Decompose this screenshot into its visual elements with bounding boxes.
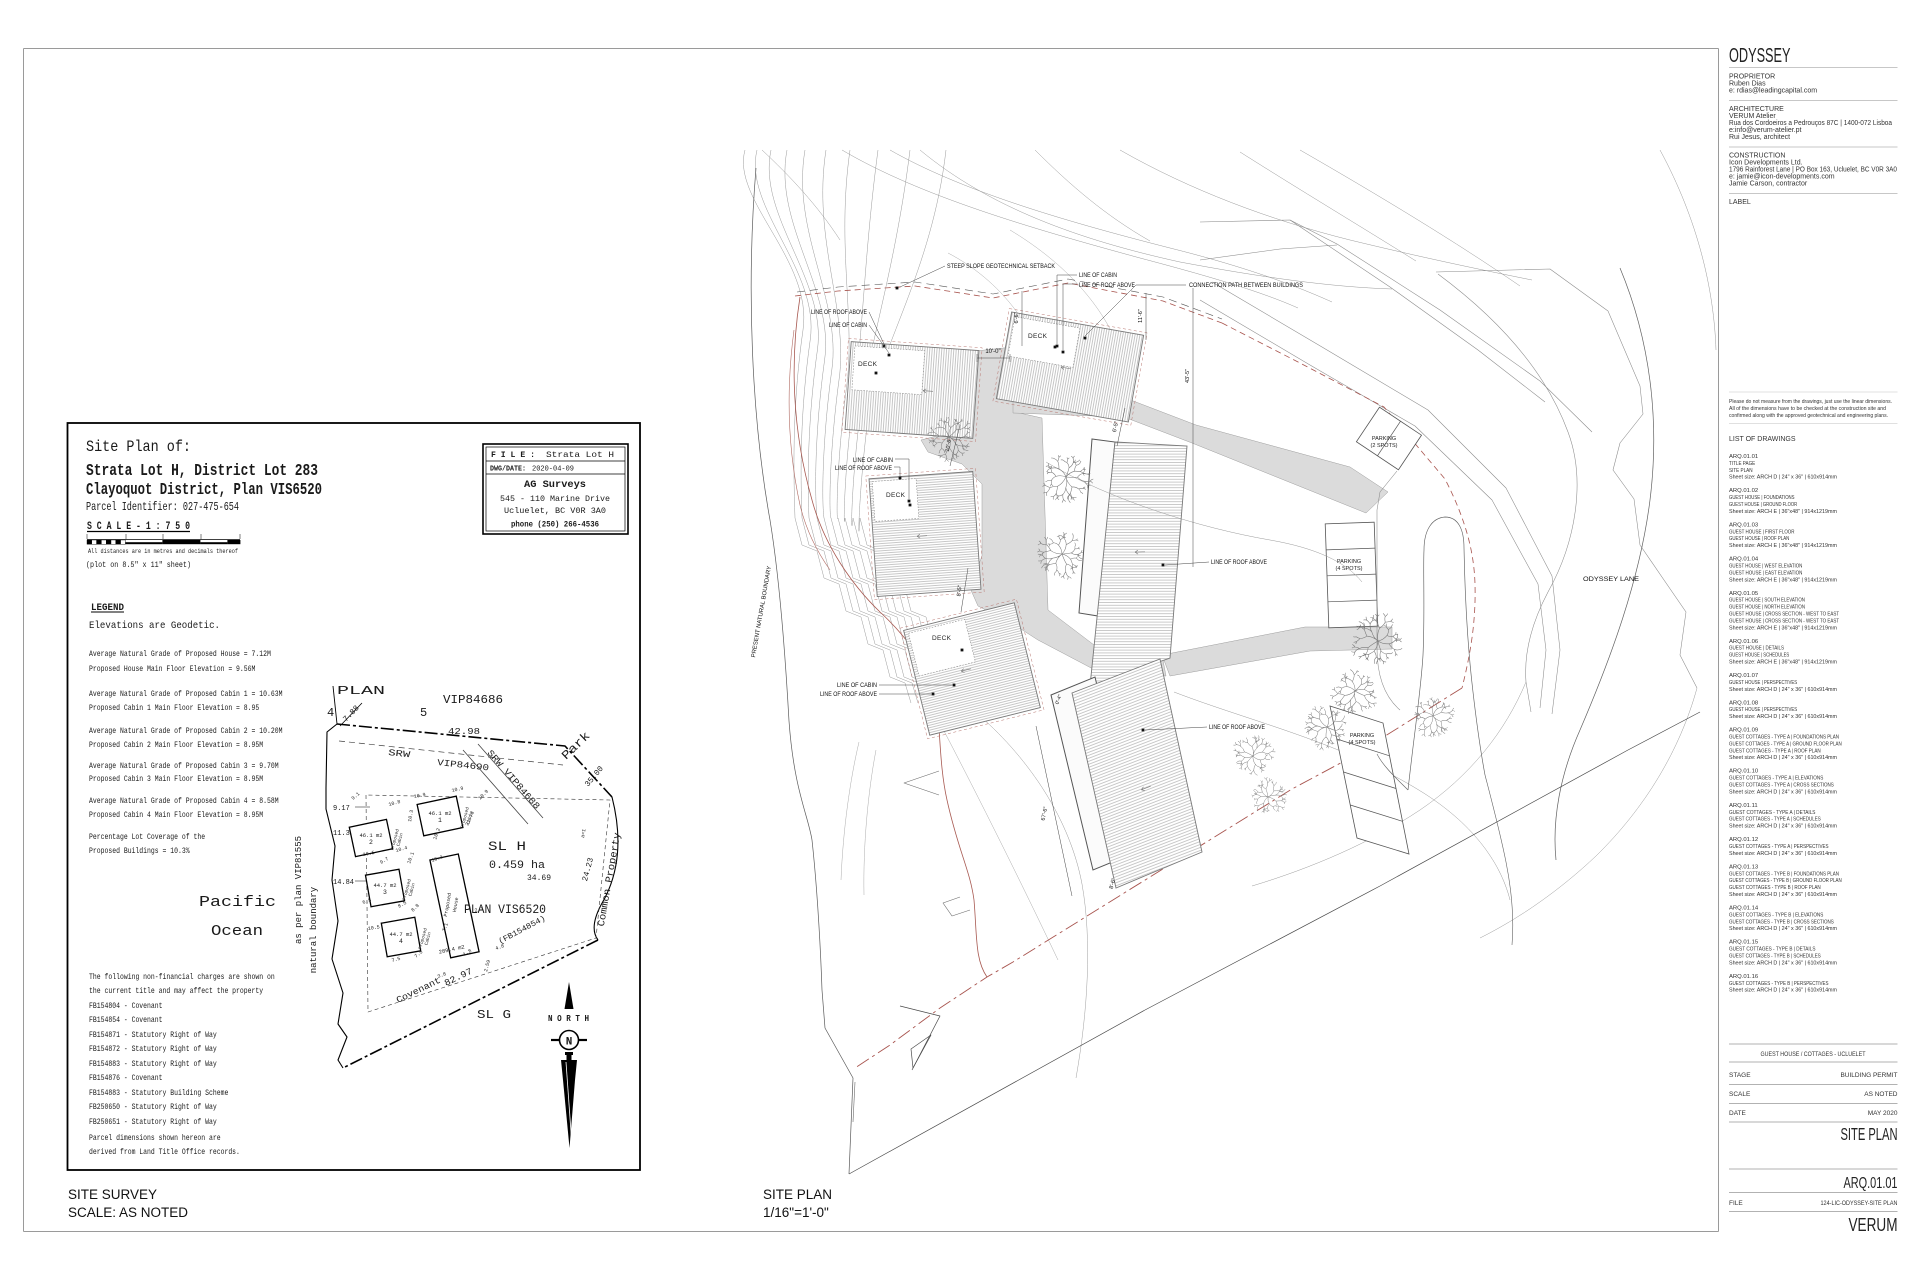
svg-text:DECK: DECK (932, 635, 952, 642)
svg-text:FB154883 - Statutory Right of: FB154883 - Statutory Right of Way (89, 1060, 217, 1069)
svg-text:Proposed House Main Floor Elev: Proposed House Main Floor Elevation = 9.… (89, 665, 256, 674)
svg-text:Sheet size: ARCH D | 24" x 36": Sheet size: ARCH D | 24" x 36" | 610x914… (1729, 988, 1837, 994)
svg-text:3: 3 (383, 889, 387, 896)
svg-text:Elevations are Geodetic.: Elevations are Geodetic. (89, 620, 220, 632)
svg-text:LINE OF CABIN: LINE OF CABIN (1079, 272, 1117, 279)
svg-text:derived from Land Title Office: derived from Land Title Office records. (89, 1148, 240, 1157)
svg-text:STEEP SLOPE GEOTECHNICAL SETBA: STEEP SLOPE GEOTECHNICAL SETBACK (947, 263, 1056, 270)
svg-text:SCALE: SCALE (1729, 1091, 1751, 1098)
svg-text:Sheet size: ARCH E | 36"x48" |: Sheet size: ARCH E | 36"x48" | 914x1219m… (1729, 577, 1837, 583)
svg-text:GUEST COTTAGES - TYPE A | ELEV: GUEST COTTAGES - TYPE A | ELEVATIONS (1729, 776, 1823, 782)
svg-text:ARQ.01.05: ARQ.01.05 (1729, 591, 1759, 597)
svg-text:ARQ.01.08: ARQ.01.08 (1729, 700, 1759, 706)
svg-text:ARQ.01.14: ARQ.01.14 (1729, 906, 1759, 912)
svg-text:Jamie Carson, contractor: Jamie Carson, contractor (1729, 181, 1808, 188)
svg-text:Ruben Dias: Ruben Dias (1729, 81, 1766, 88)
svg-text:VERUM Atelier: VERUM Atelier (1729, 113, 1776, 120)
svg-text:Icon Developments Ltd.: Icon Developments Ltd. (1729, 160, 1803, 167)
svg-text:Average Natural Grade of Propo: Average Natural Grade of Proposed House … (89, 650, 271, 659)
svg-text:46.1 m2: 46.1 m2 (428, 810, 451, 817)
svg-text:VIP84686: VIP84686 (443, 693, 503, 707)
svg-text:confirmed along with the appro: confirmed along with the approved geotec… (1729, 413, 1888, 419)
svg-text:Sheet size: ARCH D | 24" x 36": Sheet size: ARCH D | 24" x 36" | 610x914… (1729, 824, 1837, 830)
svg-text:GUEST COTTAGES - TYPE A | ROOF: GUEST COTTAGES - TYPE A | ROOF PLAN (1729, 748, 1821, 754)
svg-text:GUEST COTTAGES - TYPE B | CROS: GUEST COTTAGES - TYPE B | CROSS SECTIONS (1729, 919, 1834, 925)
svg-text:Sheet size: ARCH D | 24" x 36": Sheet size: ARCH D | 24" x 36" | 610x914… (1729, 892, 1837, 898)
svg-text:PROPRIETOR: PROPRIETOR (1729, 74, 1775, 81)
svg-text:DECK: DECK (1028, 333, 1048, 340)
svg-text:42.98: 42.98 (448, 727, 480, 737)
svg-text:8'-5": 8'-5" (956, 585, 963, 597)
svg-text:Rua dos Cordoeiros a Pedrouços: Rua dos Cordoeiros a Pedrouços 87C | 140… (1729, 120, 1892, 127)
svg-text:Sheet size: ARCH D | 24" x 36": Sheet size: ARCH D | 24" x 36" | 610x914… (1729, 714, 1837, 720)
svg-text:FB154804 - Covenant: FB154804 - Covenant (89, 1002, 163, 1011)
svg-text:GUEST COTTAGES - TYPE B | ELEV: GUEST COTTAGES - TYPE B | ELEVATIONS (1729, 912, 1823, 918)
svg-text:GUEST COTTAGES - TYPE B | FOUN: GUEST COTTAGES - TYPE B | FOUNDATIONS PL… (1729, 871, 1839, 877)
svg-text:Ocean: Ocean (211, 923, 263, 940)
svg-text:Pacific: Pacific (199, 894, 276, 911)
svg-text:Rui Jesus, architect: Rui Jesus, architect (1729, 134, 1790, 141)
svg-text:GUEST HOUSE | DETAILS: GUEST HOUSE | DETAILS (1729, 646, 1784, 652)
svg-text:Average Natural Grade of Propo: Average Natural Grade of Proposed Cabin … (89, 690, 283, 699)
svg-text:GUEST COTTAGES - TYPE A | PERS: GUEST COTTAGES - TYPE A | PERSPECTIVES (1729, 844, 1829, 850)
svg-text:GUEST COTTAGES - TYPE A | SCHE: GUEST COTTAGES - TYPE A | SCHEDULES (1729, 817, 1821, 823)
svg-text:2020-04-09: 2020-04-09 (532, 466, 574, 474)
svg-text:ODYSSEY LANE: ODYSSEY LANE (1583, 576, 1640, 583)
svg-text:43'-5": 43'-5" (1185, 369, 1191, 383)
svg-text:ARQ.01.15: ARQ.01.15 (1729, 940, 1759, 946)
svg-text:Site Plan of:: Site Plan of: (86, 438, 191, 456)
svg-text:PARKING: PARKING (1350, 733, 1374, 739)
svg-text:Proposed Cabin 3 Main Floor El: Proposed Cabin 3 Main Floor Elevation = … (89, 775, 263, 784)
svg-text:SITE PLAN: SITE PLAN (763, 1187, 832, 1202)
svg-text:GUEST COTTAGES - TYPE A | CROS: GUEST COTTAGES - TYPE A | CROSS SECTIONS (1729, 783, 1834, 789)
svg-text:Sheet size: ARCH D | 24" x 36": Sheet size: ARCH D | 24" x 36" | 610x914… (1729, 960, 1837, 966)
svg-text:46.1 m2: 46.1 m2 (359, 832, 382, 839)
svg-text:ARQ.01.01: ARQ.01.01 (1844, 1175, 1898, 1192)
svg-text:SL G: SL G (477, 1008, 511, 1022)
svg-text:Sheet size: ARCH D | 24" x 36": Sheet size: ARCH D | 24" x 36" | 610x914… (1729, 687, 1837, 693)
svg-text:ARQ.01.06: ARQ.01.06 (1729, 639, 1759, 645)
svg-text:LINE OF ROOF ABOVE: LINE OF ROOF ABOVE (835, 465, 893, 472)
svg-text:GUEST COTTAGES - TYPE B | PERS: GUEST COTTAGES - TYPE B | PERSPECTIVES (1729, 981, 1829, 987)
svg-text:DECK: DECK (886, 492, 906, 499)
svg-text:4: 4 (327, 706, 334, 720)
svg-text:Strata Lot H: Strata Lot H (546, 450, 614, 460)
svg-text:SITE PLAN: SITE PLAN (1729, 468, 1753, 474)
svg-text:2: 2 (369, 839, 373, 846)
svg-text:Sheet size: ARCH E | 36"x48" |: Sheet size: ARCH E | 36"x48" | 914x1219m… (1729, 660, 1837, 666)
svg-text:ARQ.01.11: ARQ.01.11 (1729, 803, 1758, 809)
svg-text:All distances are in metres an: All distances are in metres and decimals… (88, 548, 238, 555)
svg-text:LINE OF ROOF ABOVE: LINE OF ROOF ABOVE (1211, 559, 1268, 566)
svg-text:Proposed Cabin 2 Main Floor El: Proposed Cabin 2 Main Floor Elevation = … (89, 741, 263, 750)
svg-text:FB154854 - Covenant: FB154854 - Covenant (89, 1016, 163, 1025)
svg-text:Proposed Buildings = 10.3%: Proposed Buildings = 10.3% (89, 847, 190, 856)
svg-text:GUEST COTTAGES - TYPE B | GROU: GUEST COTTAGES - TYPE B | GROUND FLOOR P… (1729, 878, 1842, 884)
svg-text:LINE OF ROOF ABOVE: LINE OF ROOF ABOVE (811, 309, 868, 316)
svg-text:Proposed Cabin 4 Main Floor El: Proposed Cabin 4 Main Floor Elevation = … (89, 811, 263, 820)
svg-text:GUEST HOUSE | CROSS SECTION -: GUEST HOUSE | CROSS SECTION - WEST TO EA… (1729, 618, 1839, 624)
svg-text:FB154872 - Statutory Right of: FB154872 - Statutory Right of Way (89, 1045, 217, 1054)
svg-text:(plot on 8.5" x 11" sheet): (plot on 8.5" x 11" sheet) (86, 560, 191, 570)
svg-text:0.459 ha: 0.459 ha (489, 860, 545, 872)
svg-text:ARCHITECTURE: ARCHITECTURE (1729, 106, 1784, 113)
svg-text:10'-0": 10'-0" (985, 349, 1000, 355)
svg-text:545 - 110 Marine Drive: 545 - 110 Marine Drive (500, 494, 610, 504)
svg-text:1: 1 (438, 817, 442, 824)
svg-text:Ucluelet, BC V0R 3A0: Ucluelet, BC V0R 3A0 (504, 506, 606, 516)
svg-text:44.7 m2: 44.7 m2 (373, 882, 396, 889)
svg-text:ARQ.01.07: ARQ.01.07 (1729, 673, 1758, 679)
svg-text:LINE OF ROOF ABOVE: LINE OF ROOF ABOVE (1209, 724, 1266, 731)
svg-text:LINE OF ROOF ABOVE: LINE OF ROOF ABOVE (820, 691, 878, 698)
svg-text:GUEST COTTAGES - TYPE A | DETA: GUEST COTTAGES - TYPE A | DETAILS (1729, 810, 1816, 816)
svg-text:(2 SPOTS): (2 SPOTS) (1371, 443, 1398, 449)
svg-text:44.7 m2: 44.7 m2 (389, 931, 412, 938)
svg-text:ARQ.01.16: ARQ.01.16 (1729, 974, 1759, 980)
svg-text:GUEST COTTAGES - TYPE A | GROU: GUEST COTTAGES - TYPE A | GROUND FLOOR P… (1729, 741, 1842, 747)
svg-text:LABEL: LABEL (1729, 199, 1751, 206)
svg-text:Sheet size: ARCH D | 24" x 36": Sheet size: ARCH D | 24" x 36" | 610x914… (1729, 475, 1837, 481)
svg-text:DATE: DATE (1729, 1110, 1747, 1117)
svg-text:TITLE PAGE: TITLE PAGE (1729, 461, 1755, 467)
svg-text:PARKING: PARKING (1337, 559, 1361, 565)
svg-text:Sheet size: ARCH D | 24" x 36": Sheet size: ARCH D | 24" x 36" | 610x914… (1729, 755, 1837, 761)
svg-text:124-LIC-ODYSSEY-SITE PLAN: 124-LIC-ODYSSEY-SITE PLAN (1821, 1200, 1898, 1207)
svg-text:34.69: 34.69 (527, 874, 551, 883)
svg-text:PLAN: PLAN (337, 684, 385, 698)
svg-text:GUEST HOUSE | PERSPECTIVES: GUEST HOUSE | PERSPECTIVES (1729, 680, 1797, 686)
svg-text:GUEST HOUSE | SCHEDULES: GUEST HOUSE | SCHEDULES (1729, 653, 1789, 659)
svg-text:SCALE: AS NOTED: SCALE: AS NOTED (68, 1205, 188, 1220)
svg-text:5: 5 (420, 706, 427, 720)
svg-text:ARQ.01.01: ARQ.01.01 (1729, 454, 1758, 460)
svg-text:ARQ.01.03: ARQ.01.03 (1729, 522, 1759, 528)
svg-text:Sheet size: ARCH D | 24" x 36": Sheet size: ARCH D | 24" x 36" | 610x914… (1729, 926, 1837, 932)
svg-text:ARQ.01.09: ARQ.01.09 (1729, 728, 1758, 734)
svg-text:ARQ.01.04: ARQ.01.04 (1729, 557, 1759, 563)
svg-text:phone (250) 266-4536: phone (250) 266-4536 (511, 521, 599, 530)
svg-text:Percentage Lot Coverage of the: Percentage Lot Coverage of the (89, 833, 205, 842)
svg-text:GUEST HOUSE | FIRST FLOOR: GUEST HOUSE | FIRST FLOOR (1729, 529, 1795, 535)
svg-text:ARQ.01.13: ARQ.01.13 (1729, 864, 1759, 870)
svg-text:FB154876 - Covenant: FB154876 - Covenant (89, 1074, 163, 1083)
svg-text:GUEST HOUSE | ROOF PLAN: GUEST HOUSE | ROOF PLAN (1729, 536, 1789, 542)
svg-text:ARQ.01.02: ARQ.01.02 (1729, 488, 1758, 494)
svg-text:the current title and may affe: the current title and may affect the pro… (89, 987, 263, 996)
svg-text:as per plan VIP81555: as per plan VIP81555 (294, 836, 304, 944)
svg-text:FB154883 - Statutory Building: FB154883 - Statutory Building Scheme (89, 1089, 228, 1098)
svg-text:N O R T H: N O R T H (548, 1013, 589, 1024)
svg-text:(4 SPOTS): (4 SPOTS) (1349, 740, 1376, 746)
svg-text:FILE: FILE (1729, 1200, 1743, 1207)
svg-text:GUEST HOUSE | FOUNDATIONS: GUEST HOUSE | FOUNDATIONS (1729, 495, 1795, 501)
svg-text:FB250650 - Statutory Right of: FB250650 - Statutory Right of Way (89, 1103, 217, 1112)
svg-text:F I L E :: F I L E : (491, 450, 535, 460)
svg-text:Please do not measure from the: Please do not measure from the drawings,… (1729, 399, 1892, 405)
svg-text:14.84: 14.84 (333, 879, 354, 887)
svg-text:e: rdias@leadingcapital.com: e: rdias@leadingcapital.com (1729, 88, 1817, 95)
svg-text:ARQ.01.12: ARQ.01.12 (1729, 837, 1758, 843)
svg-text:LINE OF CABIN: LINE OF CABIN (829, 322, 867, 329)
svg-text:11'-6": 11'-6" (1138, 309, 1144, 323)
svg-text:GUEST HOUSE / COTTAGES - UCLUE: GUEST HOUSE / COTTAGES - UCLUELET (1761, 1051, 1866, 1058)
svg-text:Sheet size: ARCH D | 24" x 36": Sheet size: ARCH D | 24" x 36" | 610x914… (1729, 789, 1837, 795)
svg-text:AS NOTED: AS NOTED (1864, 1091, 1898, 1098)
svg-text:Average Natural Grade of Propo: Average Natural Grade of Proposed Cabin … (89, 727, 283, 736)
svg-text:Parcel dimensions shown hereon: Parcel dimensions shown hereon are (89, 1134, 221, 1143)
svg-text:(4 SPOTS): (4 SPOTS) (1336, 566, 1363, 572)
svg-text:ODYSSEY: ODYSSEY (1729, 45, 1791, 67)
svg-text:natural boundary: natural boundary (309, 886, 319, 973)
svg-text:CONNECTION PATH BETWEEN BUILDI: CONNECTION PATH BETWEEN BUILDINGS (1189, 282, 1304, 289)
svg-text:N: N (566, 1037, 573, 1049)
svg-text:GUEST COTTAGES - TYPE A | FOUN: GUEST COTTAGES - TYPE A | FOUNDATIONS PL… (1729, 735, 1839, 741)
svg-text:GUEST HOUSE | EAST ELEVATION: GUEST HOUSE | EAST ELEVATION (1729, 570, 1802, 576)
svg-text:6'-6": 6'-6" (1014, 312, 1020, 323)
svg-text:Sheet size: ARCH E | 36"x48" |: Sheet size: ARCH E | 36"x48" | 914x1219m… (1729, 543, 1837, 549)
svg-text:MAY 2020: MAY 2020 (1868, 1110, 1898, 1117)
svg-text:e: jamie@icon-developments.com: e: jamie@icon-developments.com (1729, 174, 1835, 181)
svg-text:LIST OF DRAWINGS: LIST OF DRAWINGS (1729, 436, 1796, 443)
svg-text:9.17: 9.17 (333, 805, 350, 813)
svg-text:e:info@verum-atelier.pt: e:info@verum-atelier.pt (1729, 127, 1802, 134)
svg-text:Strata Lot H, District Lot 283: Strata Lot H, District Lot 283 (86, 462, 318, 481)
svg-text:CONSTRUCTION: CONSTRUCTION (1729, 153, 1785, 160)
svg-text:Parcel Identifier: 027-475-654: Parcel Identifier: 027-475-654 (86, 500, 239, 514)
svg-text:DECK: DECK (858, 361, 878, 368)
svg-text:FB154871 - Statutory Right of: FB154871 - Statutory Right of Way (89, 1031, 217, 1040)
svg-text:Proposed Cabin 1 Main Floor El: Proposed Cabin 1 Main Floor Elevation = … (89, 704, 259, 713)
svg-text:GUEST HOUSE | WEST ELEVATION: GUEST HOUSE | WEST ELEVATION (1729, 564, 1802, 570)
svg-text:SITE PLAN: SITE PLAN (1841, 1124, 1898, 1144)
svg-text:LINE OF CABIN: LINE OF CABIN (853, 457, 893, 464)
svg-text:Sheet size: ARCH E | 36"x48" |: Sheet size: ARCH E | 36"x48" | 914x1219m… (1729, 625, 1837, 631)
svg-text:1/16"=1'-0": 1/16"=1'-0" (763, 1205, 829, 1220)
svg-text:GUEST HOUSE | CROSS SECTION -: GUEST HOUSE | CROSS SECTION - WEST TO EA… (1729, 612, 1839, 618)
svg-text:STAGE: STAGE (1729, 1072, 1751, 1079)
svg-text:SITE SURVEY: SITE SURVEY (68, 1187, 157, 1202)
svg-text:All of the dimensions have to: All of the dimensions have to be checked… (1729, 406, 1886, 412)
svg-text:DWG/DATE:: DWG/DATE: (490, 466, 526, 474)
svg-text:LINE OF ROOF ABOVE: LINE OF ROOF ABOVE (1079, 282, 1136, 289)
svg-text:SL H: SL H (488, 839, 526, 854)
svg-text:GUEST HOUSE | NORTH ELEVATION: GUEST HOUSE | NORTH ELEVATION (1729, 605, 1805, 611)
svg-text:BUILDING PERMIT: BUILDING PERMIT (1840, 1072, 1897, 1079)
svg-text:VERUM: VERUM (1849, 1214, 1898, 1235)
svg-text:FB250651 - Statutory Right of: FB250651 - Statutory Right of Way (89, 1118, 217, 1127)
svg-text:GUEST HOUSE | GROUND FLOOR: GUEST HOUSE | GROUND FLOOR (1729, 502, 1797, 508)
svg-text:PARKING: PARKING (1372, 436, 1396, 442)
svg-text:1796 Rainforest Lane | PO Box: 1796 Rainforest Lane | PO Box 163, Uclue… (1729, 167, 1897, 174)
svg-text:GUEST COTTAGES - TYPE B | ROOF: GUEST COTTAGES - TYPE B | ROOF PLAN (1729, 885, 1821, 891)
svg-text:GUEST COTTAGES - TYPE B | SCHE: GUEST COTTAGES - TYPE B | SCHEDULES (1729, 954, 1821, 960)
svg-text:Sheet size: ARCH E | 36"x48" |: Sheet size: ARCH E | 36"x48" | 914x1219m… (1729, 509, 1837, 515)
svg-text:Average Natural Grade of Propo: Average Natural Grade of Proposed Cabin … (89, 762, 279, 771)
svg-text:Average Natural Grade of Propo: Average Natural Grade of Proposed Cabin … (89, 797, 279, 806)
svg-text:AG Surveys: AG Surveys (524, 479, 586, 491)
svg-text:The following non-financial ch: The following non-financial charges are … (89, 973, 275, 982)
svg-text:GUEST HOUSE | PERSPECTIVES: GUEST HOUSE | PERSPECTIVES (1729, 707, 1797, 713)
svg-text:ARQ.01.10: ARQ.01.10 (1729, 769, 1759, 775)
svg-text:LINE OF CABIN: LINE OF CABIN (837, 682, 877, 689)
svg-text:GUEST HOUSE | SOUTH ELEVATION: GUEST HOUSE | SOUTH ELEVATION (1729, 598, 1805, 604)
svg-text:GUEST COTTAGES - TYPE B | DETA: GUEST COTTAGES - TYPE B | DETAILS (1729, 947, 1816, 953)
svg-text:Clayoquot District, Plan VIS65: Clayoquot District, Plan VIS6520 (86, 481, 322, 500)
svg-text:4: 4 (399, 938, 403, 945)
svg-text:Sheet size: ARCH D | 24" x 36": Sheet size: ARCH D | 24" x 36" | 610x914… (1729, 851, 1837, 857)
